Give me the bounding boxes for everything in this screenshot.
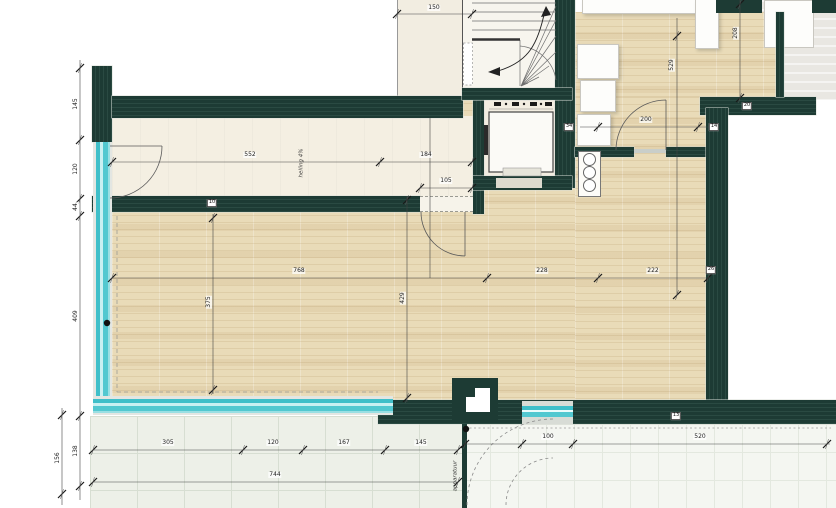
annotation-ramp-slope: helling 4%	[299, 149, 305, 178]
dimension-label: 529	[669, 58, 675, 71]
dimension-label: 156	[55, 451, 61, 464]
dimension-label: 167	[337, 440, 350, 446]
wall-thickness-label: 14	[709, 123, 719, 131]
wall-thickness-label: 10	[207, 199, 217, 207]
dimension-label: 120	[266, 440, 279, 446]
dimension-label: 100	[541, 434, 554, 440]
dimension-label: 208	[733, 26, 739, 39]
dimension-label: 768	[292, 268, 305, 274]
dimension-label: 138	[73, 444, 79, 457]
dimension-label: 520	[693, 434, 706, 440]
dimension-label: 409	[73, 309, 79, 322]
annotation-equipment: apparatuur	[453, 461, 459, 492]
dimension-label: 375	[206, 295, 212, 308]
dimension-label: 145	[73, 97, 79, 110]
floor-plan: 1505521841057682282222003051201671457441…	[0, 0, 836, 508]
dimension-label: 222	[646, 268, 659, 274]
dimension-label: 150	[427, 5, 440, 11]
dimension-label: 228	[535, 268, 548, 274]
labels-layer: 1505521841057682282222003051201671457441…	[0, 0, 836, 508]
dimension-label: 145	[414, 440, 427, 446]
dimension-label: 429	[400, 291, 406, 304]
dimension-label: 105	[439, 178, 452, 184]
wall-thickness-label: 26	[706, 266, 716, 274]
dimension-label: 744	[268, 472, 281, 478]
wall-thickness-label: 13	[671, 412, 681, 420]
dimension-label: 552	[243, 152, 256, 158]
dimension-label: 120	[73, 162, 79, 175]
wall-thickness-label: 34	[564, 123, 574, 131]
dimension-label: 200	[639, 117, 652, 123]
dimension-label: 44	[73, 202, 79, 212]
dimension-label: 184	[419, 152, 432, 158]
wall-thickness-label: 20	[742, 102, 752, 110]
dimension-label: 305	[161, 440, 174, 446]
